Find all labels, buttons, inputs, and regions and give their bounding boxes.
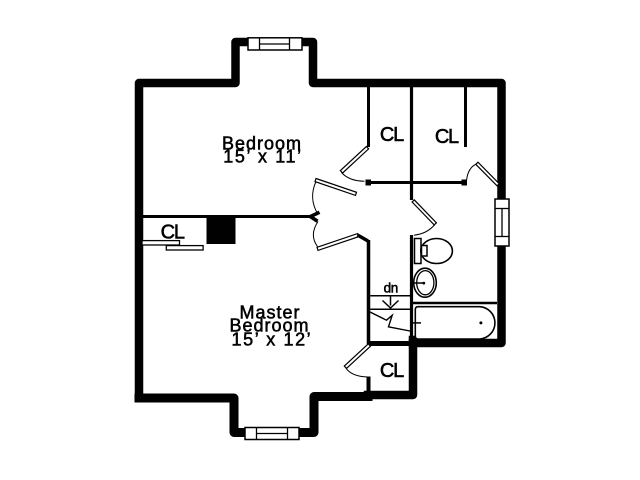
svg-text:15’ x 12’: 15’ x 12’	[232, 330, 313, 350]
svg-text:dn: dn	[384, 281, 398, 296]
svg-text:CL: CL	[380, 124, 404, 146]
svg-text:CL: CL	[161, 221, 185, 243]
svg-text:15’ x 11’: 15’ x 11’	[223, 146, 302, 166]
svg-text:CL: CL	[380, 360, 404, 382]
svg-text:CL: CL	[435, 126, 459, 148]
